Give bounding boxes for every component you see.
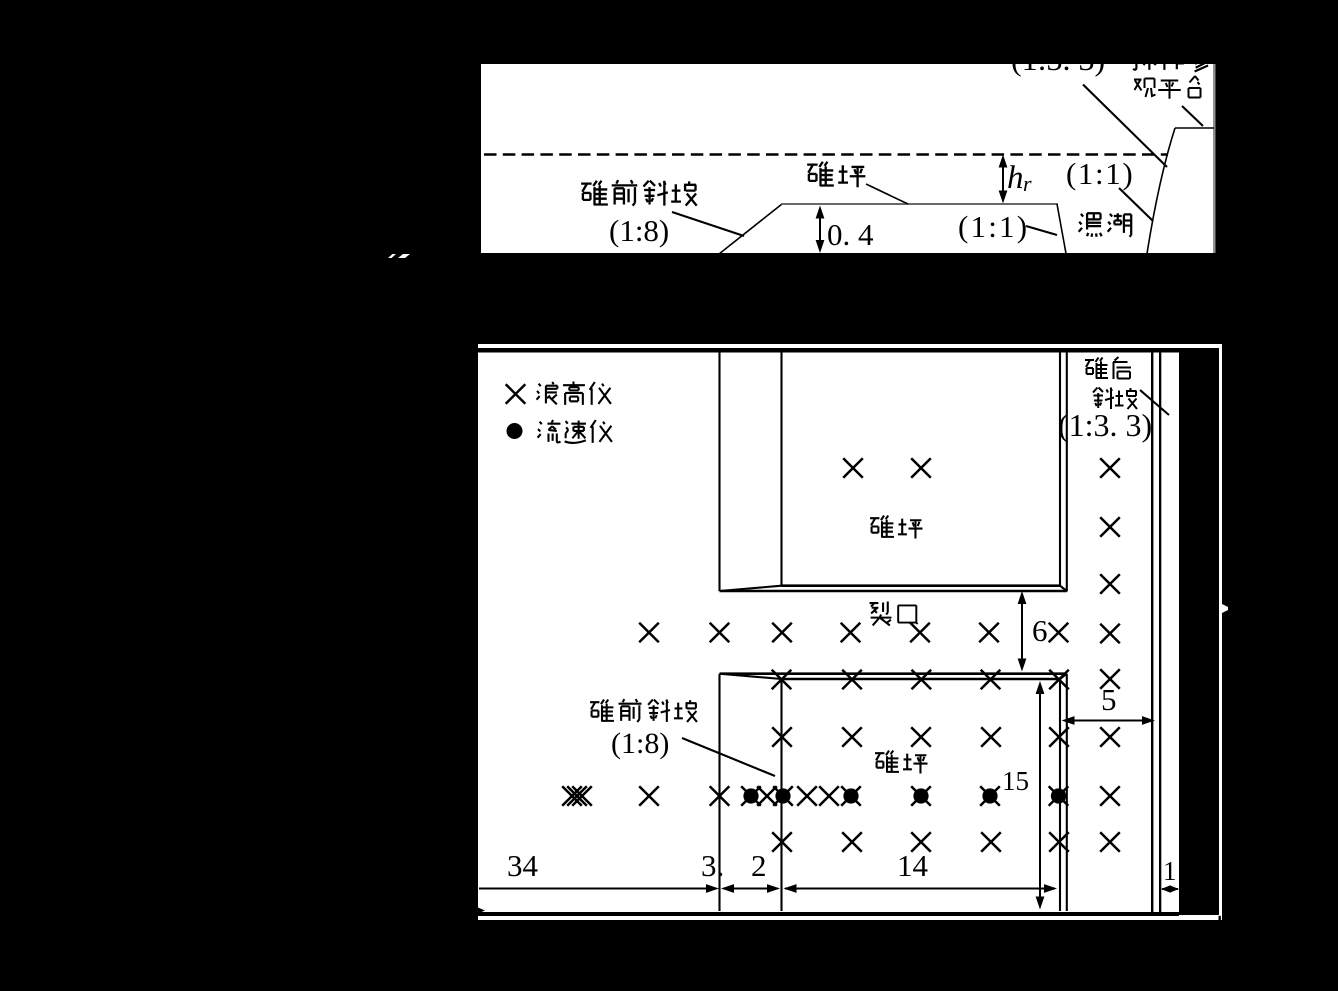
svg-text:r: r [1023, 171, 1032, 196]
svg-text:(1:1): (1:1) [1066, 156, 1134, 191]
svg-text:34: 34 [507, 848, 539, 883]
svg-text:6: 6 [1032, 613, 1048, 648]
svg-text:3.: 3. [701, 848, 724, 883]
svg-text:2: 2 [751, 848, 767, 883]
svg-text:(1:3. 3): (1:3. 3) [1058, 407, 1152, 443]
svg-text:15: 15 [1002, 766, 1029, 796]
svg-text:h: h [1007, 160, 1024, 196]
svg-text:(1:8): (1:8) [609, 213, 669, 248]
svg-text:1: 1 [1163, 856, 1177, 886]
svg-text:(1:1): (1:1) [958, 209, 1029, 244]
svg-text:(1:8): (1:8) [611, 727, 669, 760]
svg-text:5: 5 [1101, 682, 1117, 717]
svg-text:0. 4: 0. 4 [827, 217, 874, 252]
svg-text:14: 14 [897, 848, 929, 883]
